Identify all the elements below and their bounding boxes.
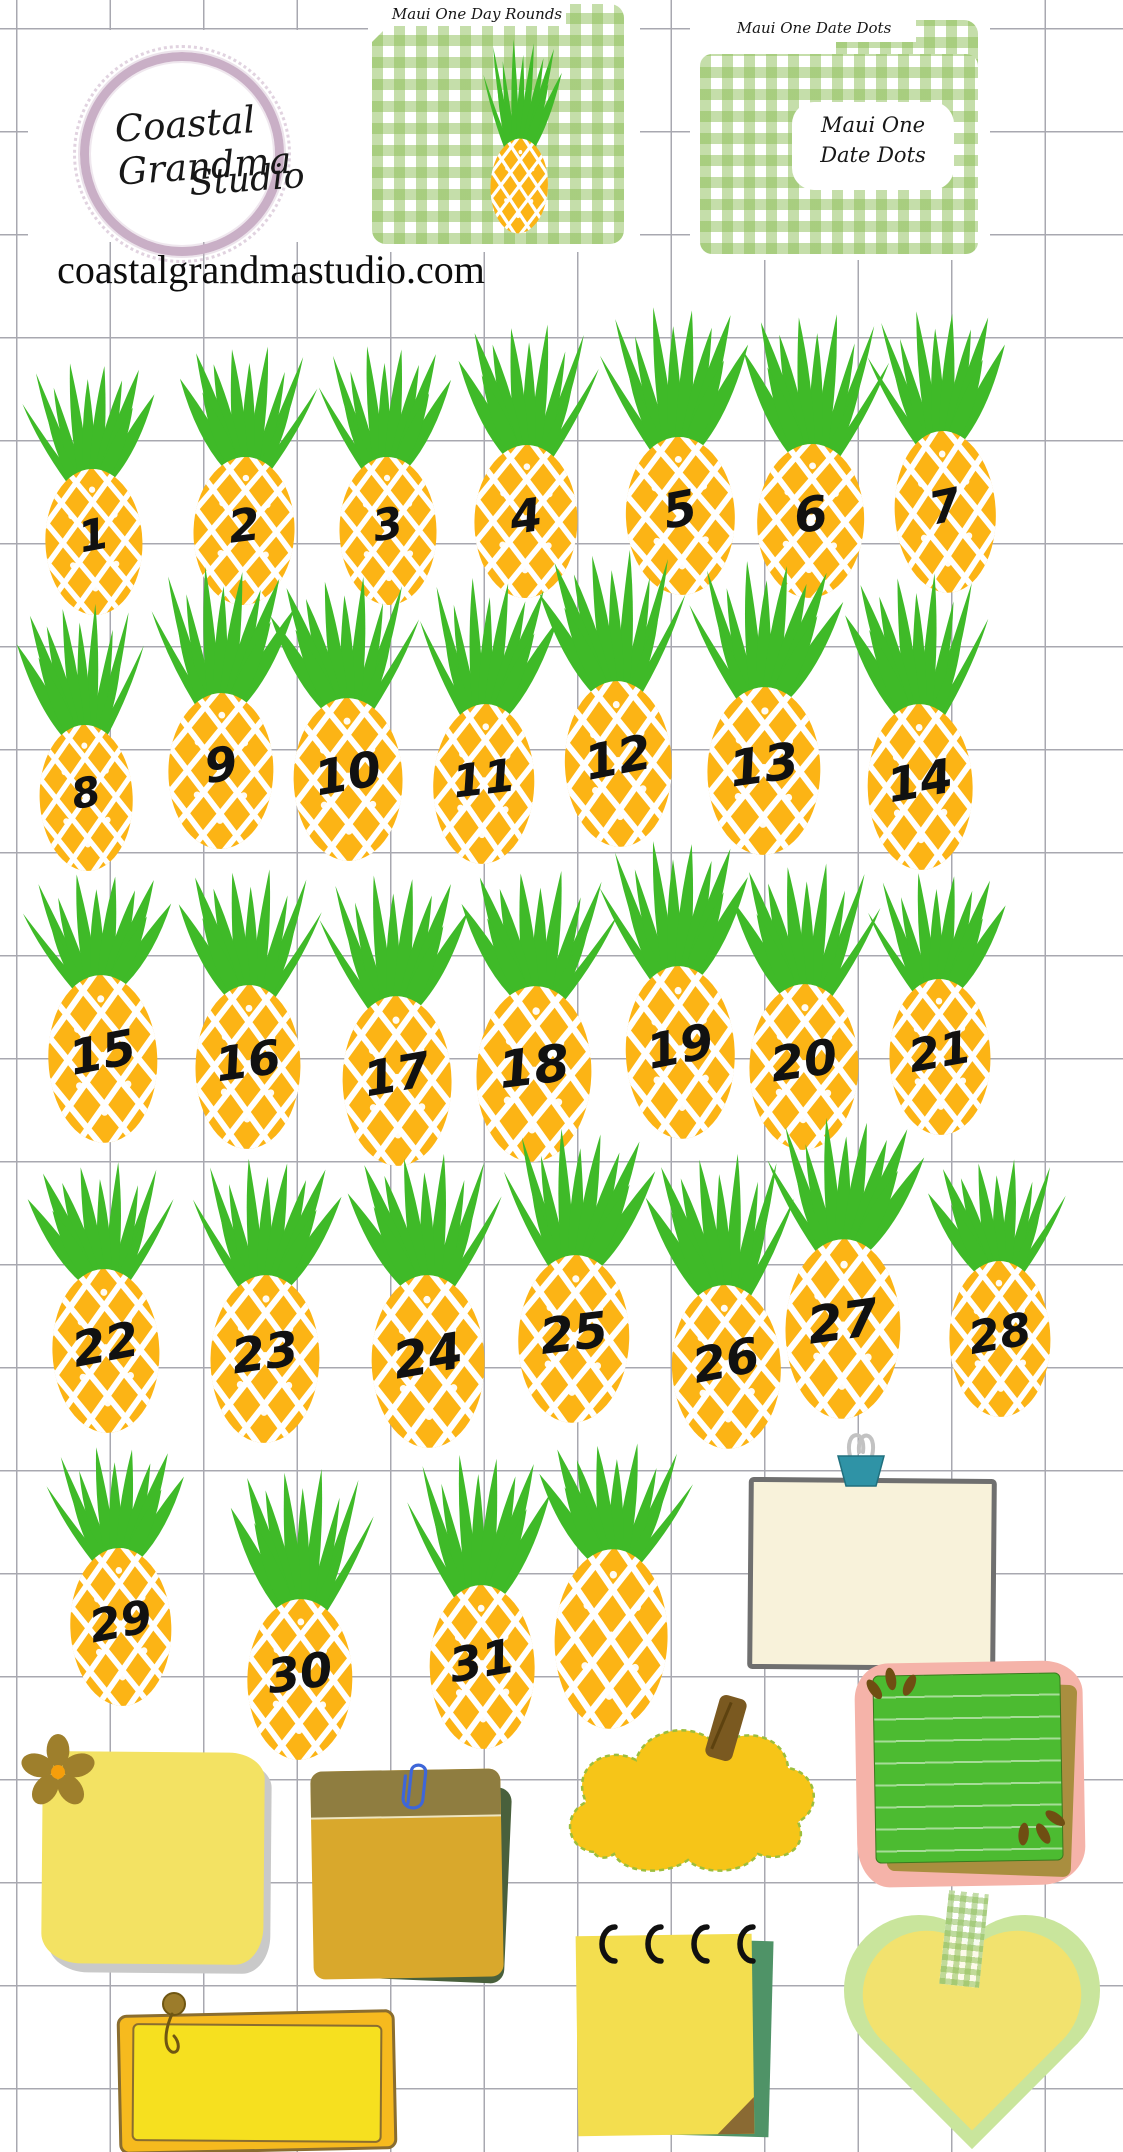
cream-note-sticker — [747, 1477, 997, 1671]
pineapple-crown-icon — [858, 302, 1018, 450]
spiral-notepad-sticker — [575, 1917, 777, 2150]
pineapple-date-dot: 14 — [836, 568, 1000, 873]
pineapple-crown-icon — [183, 1154, 350, 1292]
pineapple-date-dot: 29 — [37, 1440, 199, 1709]
spiral-binding-icon — [589, 1917, 757, 1971]
pineapple-body-icon — [488, 137, 549, 235]
pineapple-crown-icon — [311, 341, 460, 474]
pineapple-crown-icon — [860, 868, 1015, 996]
binder-clip-icon — [824, 1428, 898, 1490]
pineapple-crown-icon — [836, 568, 998, 721]
pineapple-date-dot: 28 — [920, 1155, 1078, 1420]
leaf-accent-icon — [864, 1656, 926, 1704]
pineapple-crown-icon — [920, 1155, 1075, 1278]
pineapple-date-dot: 15 — [13, 867, 187, 1147]
pineapple-date-dot: 7 — [858, 302, 1026, 598]
folder-day-rounds-label: Maui One Day Rounds — [388, 2, 566, 26]
folder-date-dots-card: Maui One Date Dots — [792, 102, 954, 190]
card-line2: Date Dots — [792, 140, 954, 170]
pineapple-crown-icon — [679, 556, 853, 704]
pineapple-crown-icon — [221, 1463, 383, 1616]
pineapple-icon — [522, 1436, 703, 1733]
pineapple-date-dot: 27 — [754, 1113, 933, 1422]
pineapple-date-dot: 30 — [218, 1463, 382, 1763]
paperclip-icon — [395, 1754, 437, 1819]
folded-corner — [718, 2097, 755, 2136]
clipboard-note-sticker — [312, 1768, 514, 1986]
pineapple-crown-icon — [8, 598, 154, 743]
pineapple-crown-icon — [449, 319, 607, 462]
pineapple-date-dot: 3 — [311, 341, 463, 608]
pineapple-date-dot: 22 — [18, 1156, 189, 1436]
pineapple-date-dot: 13 — [676, 556, 852, 858]
pineapple-crown-icon — [169, 339, 326, 474]
pineapple-date-dot: 16 — [167, 864, 331, 1152]
flower-icon — [20, 1734, 96, 1810]
pineapple-crown-icon — [169, 864, 330, 1002]
sticker-sheet: Coastal Grandma Studio Maui One Day Roun… — [0, 0, 1123, 2152]
pineapple-crown-icon — [261, 572, 428, 715]
framed-yellow-note-sticker — [118, 2012, 396, 2152]
pushpin-icon — [158, 1992, 198, 2064]
pumpkin-cloud-sticker — [558, 1692, 830, 1916]
pineapple-icon — [474, 35, 568, 236]
pineapple-date-dot: 21 — [860, 868, 1018, 1138]
pineapple-crown-icon — [530, 543, 697, 699]
card-line1: Maui One — [792, 110, 954, 140]
green-lined-note-sticker — [862, 1664, 1086, 1890]
pineapple-date-dot: 23 — [180, 1154, 350, 1446]
pineapple-crown-icon — [338, 1149, 511, 1292]
pineapple-date-dot: 8 — [8, 598, 158, 875]
folder-date-dots-label: Maui One Date Dots — [712, 14, 916, 42]
pineapple-crown-icon — [757, 1113, 933, 1256]
